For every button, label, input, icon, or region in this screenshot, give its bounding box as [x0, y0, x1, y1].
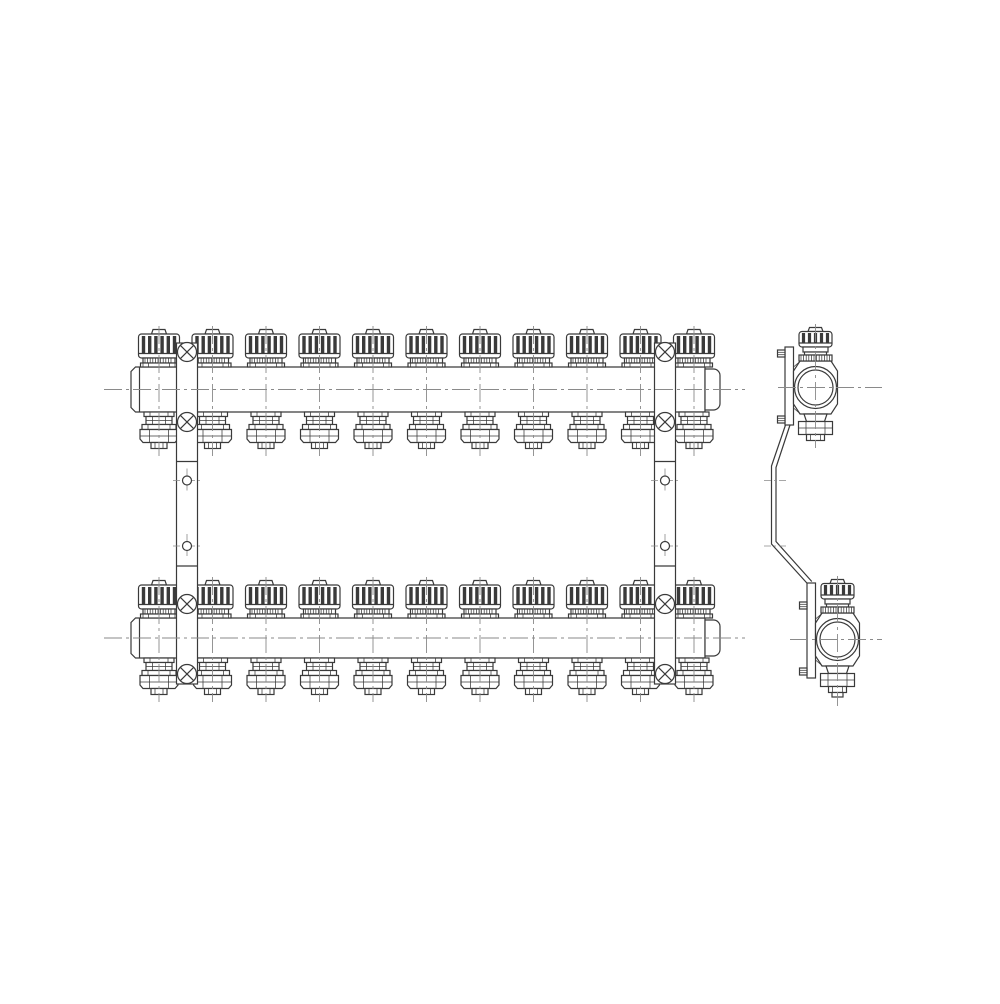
side-view: [764, 328, 860, 698]
drawing-canvas: [0, 0, 1000, 1000]
bracket-strap-profile: [772, 425, 812, 584]
top-manifold-bar: [131, 330, 720, 449]
left-mounting-bracket: [173, 343, 201, 685]
front-view: [131, 330, 720, 695]
manifold-technical-drawing: [0, 0, 1000, 1000]
bottom-manifold-bar: [131, 581, 720, 695]
side-bottom-section: [800, 580, 860, 698]
side-top-section: [778, 328, 838, 441]
right-mounting-bracket: [651, 343, 679, 685]
